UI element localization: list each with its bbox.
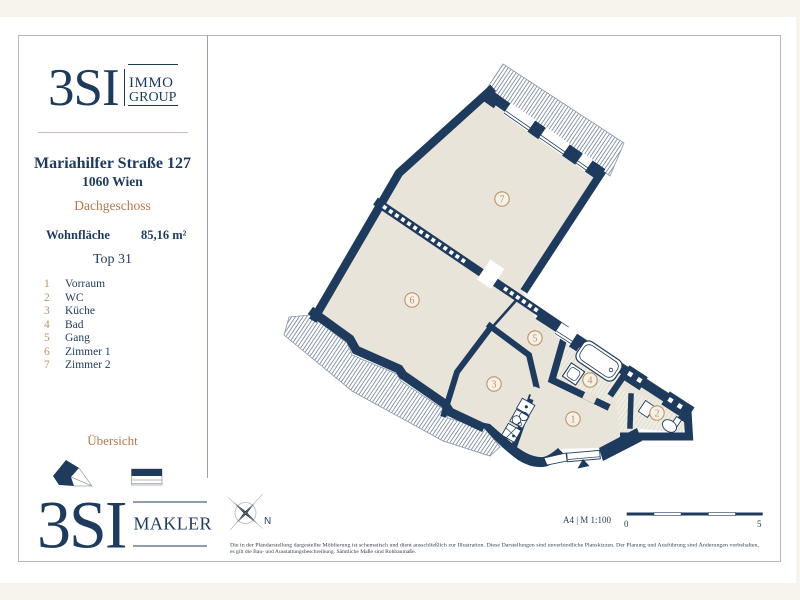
svg-text:5: 5 [533,333,538,344]
svg-text:4: 4 [588,375,593,386]
svg-text:3: 3 [492,379,497,390]
svg-text:2: 2 [655,408,660,419]
svg-text:7: 7 [500,194,505,205]
svg-text:6: 6 [410,295,415,306]
svg-text:1: 1 [571,414,576,425]
